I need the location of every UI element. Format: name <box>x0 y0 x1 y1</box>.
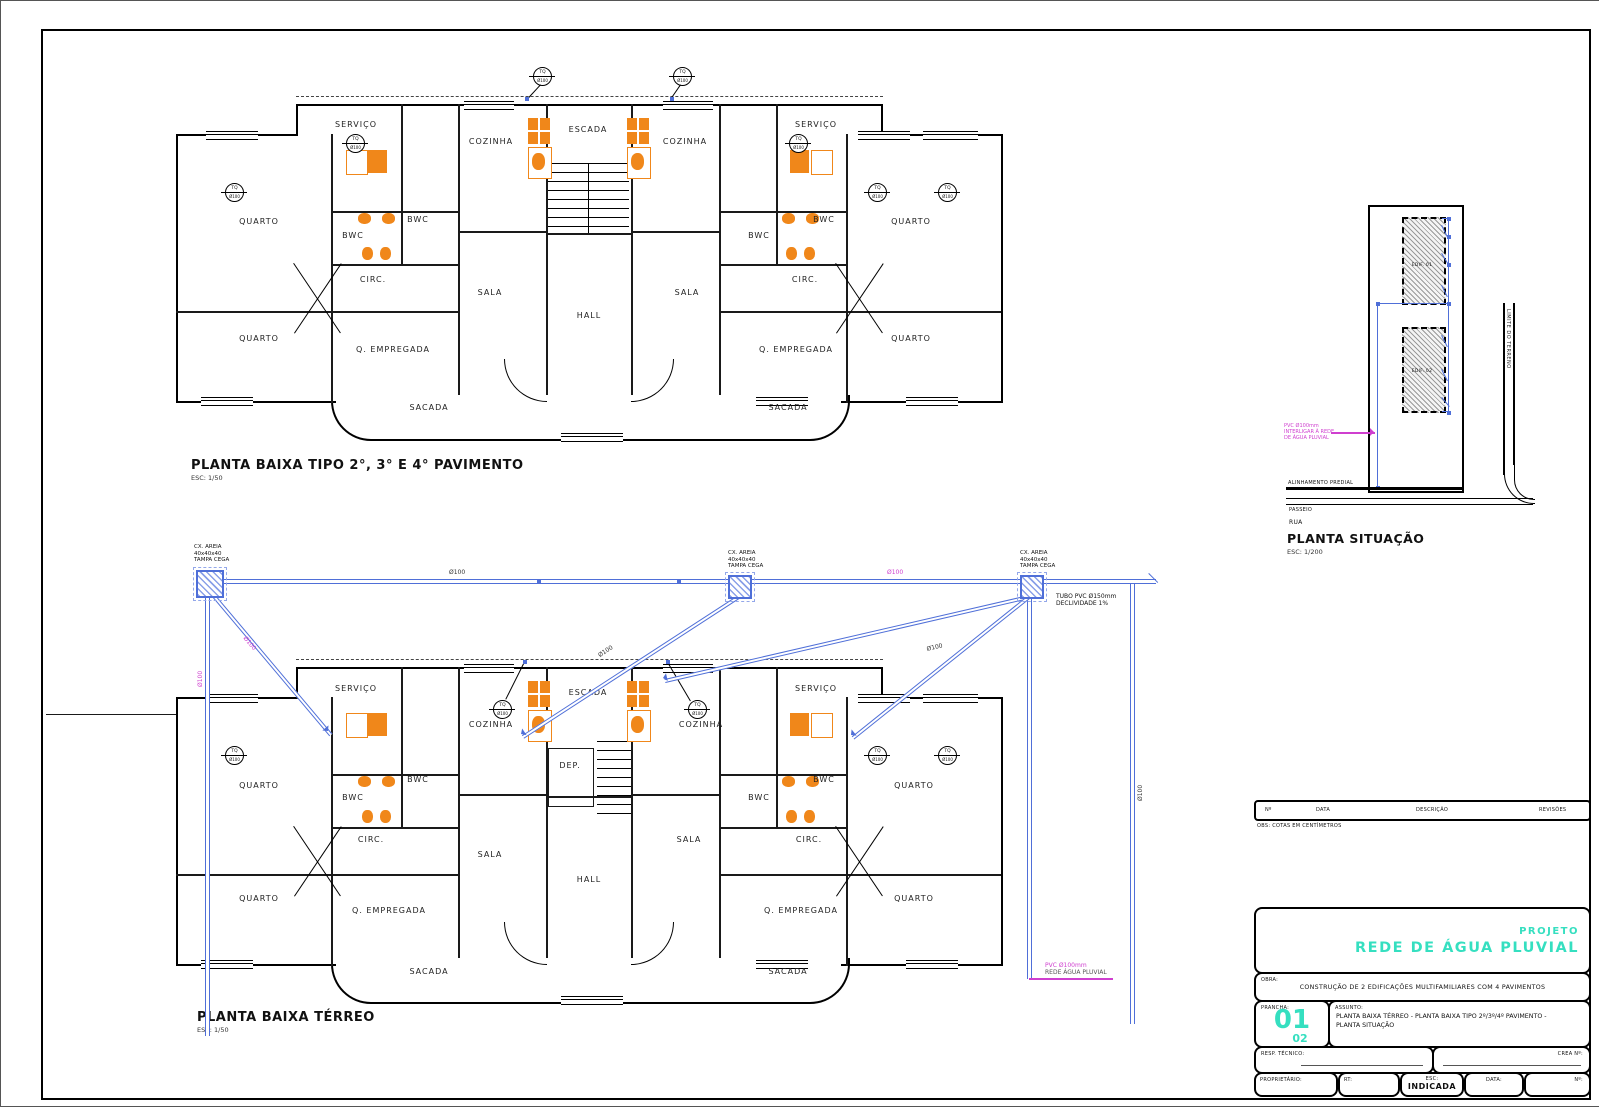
room-label: SACADA <box>409 403 448 412</box>
prim-win <box>906 960 958 969</box>
washer-icon <box>790 150 809 173</box>
toilet-icon <box>804 810 815 823</box>
ground-plan-scale: ESC: 1/50 <box>197 1026 229 1034</box>
prim-tiny: DESCRIÇÃO <box>1416 807 1448 813</box>
interconnection-note: PVC Ø100mmINTERLIGAR À REDEDE ÁGUA PLUVI… <box>1284 423 1334 441</box>
collector-branch-pipe <box>1027 596 1032 979</box>
room-label: CIRC. <box>796 835 822 844</box>
room-label: QUARTO <box>894 894 934 903</box>
prim-win <box>561 996 623 1005</box>
prim-uline <box>1301 1065 1423 1066</box>
prim-wt <box>719 667 721 958</box>
room-label: BWC <box>748 793 770 802</box>
prim-wt <box>331 697 333 966</box>
toilet-icon <box>782 213 795 224</box>
prim-dn: Ø100 <box>226 194 243 199</box>
prim-fixo <box>631 153 644 170</box>
prim-wt <box>46 714 177 715</box>
primitive: DE ÁGUA PLUVIAL <box>1284 435 1334 441</box>
room-label: SALA <box>478 288 503 297</box>
downpipe-tag: TQØ100 <box>688 700 707 719</box>
situation-title: PLANTA SITUAÇÃO <box>1287 531 1424 546</box>
prim-tp: TQ <box>226 186 243 191</box>
collector-branch-pipe <box>205 595 210 1036</box>
prim-tiny: CREA Nº: <box>1558 1051 1583 1057</box>
prim-dn: Ø100 <box>494 711 511 716</box>
prim-w <box>1286 504 1533 505</box>
rua-label: RUA <box>1289 519 1303 526</box>
prim-tiny: DATA <box>1316 807 1330 813</box>
prim-win <box>464 664 514 673</box>
prim-wt <box>546 233 631 235</box>
stove-icon <box>627 118 649 144</box>
prim-w <box>1286 498 1533 499</box>
prim-dn: Ø100 <box>534 78 551 83</box>
downpipe-tag: TQØ100 <box>938 183 957 202</box>
prim-win <box>201 397 253 406</box>
prim-pds <box>1377 303 1378 489</box>
prim-node <box>1447 217 1451 221</box>
building-label: EDIF. 01 <box>1412 263 1433 268</box>
prim-fixo <box>532 153 545 170</box>
escala-cell: ESC: INDICADA <box>1400 1072 1464 1097</box>
room-label: CIRC. <box>358 835 384 844</box>
prim-win <box>923 694 978 703</box>
proprietario-cell: PROPRIETÁRIO: <box>1254 1072 1338 1097</box>
prim-tp: TQ <box>689 703 706 708</box>
sand-box-note: CX. AREIA40x40x40TAMPA CEGA <box>194 544 229 564</box>
resp-cell: RESP. TÉCNICO: <box>1254 1046 1434 1074</box>
prim-tp: TQ <box>939 186 956 191</box>
downpipe-tag: TQØ100 <box>868 746 887 765</box>
prim-tread <box>597 768 631 769</box>
prim-wt <box>631 231 719 233</box>
pipe-diameter-label: Ø100 <box>197 671 204 687</box>
prim-wt <box>331 211 458 213</box>
toilet-icon <box>362 810 373 823</box>
sand-box <box>1020 575 1044 599</box>
room-label: DEP. <box>559 761 580 770</box>
revision-strip: Nº DATA DESCRIÇÃO REVISÕES <box>1254 800 1591 821</box>
obra-value: CONSTRUÇÃO DE 2 EDIFICAÇÕES MULTIFAMILIA… <box>1256 984 1589 991</box>
assunto-cell: ASSUNTO: PLANTA BAIXA TÉRREO - PLANTA BA… <box>1328 1000 1591 1048</box>
primitive: 40x40x40 <box>194 551 229 558</box>
prim-wt <box>776 667 778 827</box>
primitive: TAMPA CEGA <box>728 563 763 570</box>
prim-mline <box>1029 978 1113 980</box>
prim-wt <box>331 311 458 313</box>
pipe-diameter-label: Ø100 <box>887 569 903 576</box>
prim-tread <box>597 759 631 760</box>
downpipe-tag: TQØ100 <box>225 183 244 202</box>
primitive: REDE ÁGUA PLUVIAL <box>1045 969 1107 976</box>
sand-box-note: CX. AREIA40x40x40TAMPA CEGA <box>728 550 763 570</box>
primitive: TAMPA CEGA <box>194 557 229 564</box>
building-footprint <box>1402 217 1446 305</box>
prim-node <box>1447 263 1451 267</box>
room-label: BWC <box>407 215 429 224</box>
room-label: BWC <box>748 231 770 240</box>
primitive: PLANTA BAIXA TÉRREO - PLANTA BAIXA TIPO … <box>1336 1013 1547 1022</box>
primitive: CX. AREIA <box>194 544 229 551</box>
prim-w <box>176 401 336 403</box>
prancha-cell: PRANCHA: 01 02 <box>1254 1000 1330 1048</box>
toilet-icon <box>358 213 371 224</box>
prim-w <box>1001 697 1003 966</box>
prim-wt <box>401 104 403 264</box>
room-label: HALL <box>577 875 601 884</box>
toilet-icon <box>782 776 795 787</box>
washer-icon <box>368 150 387 173</box>
prim-tiny: Nº: <box>1574 1077 1583 1083</box>
prim-node <box>1376 302 1380 306</box>
primitive: PLANTA BAIXA TÉRREO - PLANTA BAIXA TIPO … <box>1336 1013 1547 1031</box>
primitive: DECLIVIDADE 1% <box>1056 600 1116 607</box>
room-label: QUARTO <box>891 217 931 226</box>
prim-w <box>1513 303 1515 465</box>
prim-tiny: RESP. TÉCNICO: <box>1261 1051 1304 1057</box>
room-label: SERVIÇO <box>335 684 377 693</box>
downpipe-tag: TQØ100 <box>533 67 552 86</box>
toilet-icon <box>804 247 815 260</box>
prim-wt <box>331 134 333 403</box>
prim-deproom <box>548 748 594 807</box>
laundry-tub-icon <box>811 713 833 738</box>
room-label: COZINHA <box>469 137 513 146</box>
prim-pds <box>1379 303 1449 304</box>
toilet-icon <box>358 776 371 787</box>
prim-dn: Ø100 <box>869 194 886 199</box>
toilet-icon <box>380 247 391 260</box>
room-label: COZINHA <box>663 137 707 146</box>
project-title: REDE DE ÁGUA PLUVIAL <box>1355 940 1579 956</box>
prim-uline <box>1443 1065 1581 1066</box>
prim-wt <box>846 134 848 403</box>
prim-wt <box>719 827 846 829</box>
sand-box <box>728 575 752 599</box>
toilet-icon <box>362 247 373 260</box>
prim-tiny: OBRA: <box>1261 977 1278 983</box>
room-label: Q. EMPREGADA <box>764 906 838 915</box>
prim-dn: Ø100 <box>226 757 243 762</box>
data-cell: DATA: <box>1464 1072 1524 1097</box>
room-label: BWC <box>813 775 835 784</box>
prim-wt <box>331 874 458 876</box>
prim-tread <box>597 777 631 778</box>
primitive: TAMPA CEGA <box>1020 563 1055 570</box>
downpipe-tag: TQØ100 <box>493 700 512 719</box>
room-label: SERVIÇO <box>795 120 837 129</box>
room-label: QUARTO <box>239 894 279 903</box>
prim-node <box>670 97 674 101</box>
prim-tread <box>597 741 631 742</box>
prim-wt <box>719 311 846 313</box>
prim-tp: TQ <box>534 70 551 75</box>
room-label: SALA <box>677 835 702 844</box>
primitive: TUBO PVC Ø150mm <box>1056 593 1116 600</box>
room-label: SALA <box>675 288 700 297</box>
prim-node <box>523 660 527 664</box>
prim-win <box>906 397 958 406</box>
prim-wt <box>458 667 460 958</box>
room-label: SACADA <box>409 967 448 976</box>
laundry-tub-icon <box>346 150 368 175</box>
room-label: Q. EMPREGADA <box>356 345 430 354</box>
prim-tp: TQ <box>226 749 243 754</box>
prim-node <box>677 579 681 583</box>
prim-tiny: PROPRIETÁRIO: <box>1260 1077 1302 1083</box>
prim-win <box>858 131 910 140</box>
downpipe-tag: TQØ100 <box>225 746 244 765</box>
stove-icon <box>627 681 649 707</box>
prim-dn: Ø100 <box>790 145 807 150</box>
prim-tread <box>597 750 631 751</box>
room-label: QUARTO <box>239 334 279 343</box>
room-label: BWC <box>407 775 429 784</box>
pipe-diameter-label: Ø100 <box>449 569 465 576</box>
downpipe-tag: TQØ100 <box>938 746 957 765</box>
prim-dn: Ø100 <box>674 78 691 83</box>
room-label: CIRC. <box>360 275 386 284</box>
prim-tread <box>597 804 631 805</box>
limite-label: LIMITE DO TERRENO <box>1505 309 1511 369</box>
project-header: PROJETO REDE DE ÁGUA PLUVIAL <box>1254 907 1591 974</box>
prim-pds <box>1448 219 1449 413</box>
prim-tp: TQ <box>347 137 364 142</box>
prim-tp: TQ <box>790 137 807 142</box>
prim-mline <box>1331 432 1375 434</box>
prim-win <box>561 433 623 442</box>
ground-plan-title: PLANTA BAIXA TÉRREO <box>197 1010 375 1025</box>
primitive: PVC Ø100mm <box>1045 962 1107 969</box>
building-label: EDIF. 02 <box>1412 369 1433 374</box>
room-label: ESCADA <box>569 125 608 134</box>
prim-tiny: DATA: <box>1486 1077 1502 1083</box>
prim-tread <box>597 795 631 796</box>
prancha-number: 01 <box>1274 1007 1310 1033</box>
room-label: BWC <box>342 231 364 240</box>
room-label: SERVIÇO <box>335 120 377 129</box>
toilet-icon <box>380 810 391 823</box>
prim-dn: Ø100 <box>869 757 886 762</box>
prim-wt <box>719 264 846 266</box>
laundry-tub-icon <box>811 150 833 175</box>
prim-win <box>464 101 514 110</box>
escala-value: INDICADA <box>1408 1082 1456 1091</box>
room-label: Q. EMPREGADA <box>352 906 426 915</box>
prim-node <box>1447 235 1451 239</box>
prim-wt <box>331 774 458 776</box>
prim-w <box>296 104 298 136</box>
stove-icon <box>528 118 550 144</box>
prim-node <box>537 579 541 583</box>
prim-wt <box>719 211 846 213</box>
room-label: HALL <box>577 311 601 320</box>
sheet-note: OBS: COTAS EM CENTÍMETROS <box>1257 823 1342 829</box>
prim-tp: TQ <box>674 70 691 75</box>
toilet-icon <box>786 810 797 823</box>
washer-icon <box>790 713 809 736</box>
downpipe-tag: TQØ100 <box>346 134 365 153</box>
stove-icon <box>528 681 550 707</box>
prim-tiny: Nº <box>1265 807 1272 813</box>
toilet-icon <box>382 776 395 787</box>
room-label: SALA <box>478 850 503 859</box>
prim-dn: Ø100 <box>939 194 956 199</box>
street-connection-note: PVC Ø100mmREDE ÁGUA PLUVIAL <box>1045 962 1107 976</box>
prim-w <box>296 104 883 106</box>
sand-box-note: CX. AREIA40x40x40TAMPA CEGA <box>1020 550 1055 570</box>
prim-tiny: RT: <box>1344 1077 1352 1083</box>
primitive: 40x40x40 <box>728 557 763 564</box>
obra-row: OBRA: CONSTRUÇÃO DE 2 EDIFICAÇÕES MULTIF… <box>1254 972 1591 1002</box>
primitive: 40x40x40 <box>1020 557 1055 564</box>
room-label: BWC <box>342 793 364 802</box>
pipe-diameter-label: Ø100 <box>1137 785 1144 801</box>
drawing-sheet: TQØ100 TQØ100 TQØ100 TQØ100 TQØ100 TQØ10… <box>0 0 1599 1107</box>
prim-dash <box>296 659 883 660</box>
room-label: COZINHA <box>679 720 723 729</box>
passeio-label: PASSEIO <box>1289 507 1312 513</box>
prim-tp: TQ <box>869 749 886 754</box>
room-label: Q. EMPREGADA <box>759 345 833 354</box>
prim-w <box>1001 134 1003 403</box>
prim-w <box>176 697 178 966</box>
prim-node <box>1447 302 1451 306</box>
sand-box <box>196 570 224 598</box>
upper-plan-title: PLANTA BAIXA TIPO 2°, 3° E 4° PAVIMENTO <box>191 458 524 473</box>
rt-cell: RT: <box>1338 1072 1400 1097</box>
prim-tp: TQ <box>939 749 956 754</box>
laundry-tub-icon <box>346 713 368 738</box>
prim-wt <box>776 104 778 264</box>
prim-wt <box>331 264 458 266</box>
pipe-note: TUBO PVC Ø150mmDECLIVIDADE 1% <box>1056 593 1116 607</box>
primitive: PLANTA SITUAÇÃO <box>1336 1022 1547 1031</box>
prim-node <box>525 97 529 101</box>
downpipe-tag: TQØ100 <box>673 67 692 86</box>
prim-tread <box>597 786 631 787</box>
situation-scale: ESC: 1/200 <box>1287 548 1323 556</box>
prim-wt <box>458 104 460 395</box>
prim-tiny: ASSUNTO: <box>1335 1005 1363 1011</box>
prim-wt <box>719 874 846 876</box>
washer-icon <box>368 713 387 736</box>
crea-cell: CREA Nº: <box>1432 1046 1591 1074</box>
numero-cell: Nº: <box>1524 1072 1591 1097</box>
room-label: COZINHA <box>469 720 513 729</box>
prim-wt <box>719 104 721 395</box>
prim-arr <box>1370 428 1378 436</box>
prim-tp: TQ <box>869 186 886 191</box>
collector-branch-pipe <box>1130 584 1135 1024</box>
downpipe-tag: TQØ100 <box>868 183 887 202</box>
prim-win <box>923 131 978 140</box>
prim-node <box>666 660 670 664</box>
prim-dn: Ø100 <box>347 145 364 150</box>
prim-w <box>296 667 883 669</box>
room-label: SACADA <box>768 967 807 976</box>
projeto-label: PROJETO <box>1519 926 1579 937</box>
prim-wt <box>458 794 546 796</box>
toilet-icon <box>382 213 395 224</box>
prim-wt <box>631 794 719 796</box>
prim-wt <box>458 231 546 233</box>
prim-w <box>176 134 178 403</box>
prim-dn: Ø100 <box>939 757 956 762</box>
prim-dash <box>296 96 883 97</box>
room-label: QUARTO <box>239 781 279 790</box>
toilet-icon <box>786 247 797 260</box>
prancha-total: 02 <box>1292 1032 1307 1045</box>
prim-tiny: REVISÕES <box>1539 807 1566 813</box>
room-label: CIRC. <box>792 275 818 284</box>
room-label: QUARTO <box>891 334 931 343</box>
downpipe-tag: TQØ100 <box>789 134 808 153</box>
upper-plan-scale: ESC: 1/50 <box>191 474 223 482</box>
alinhamento-label: ALINHAMENTO PREDIAL <box>1288 480 1353 486</box>
prim-win <box>663 101 713 110</box>
prim-dn: Ø100 <box>689 711 706 716</box>
room-label: SERVIÇO <box>795 684 837 693</box>
prim-wt <box>401 667 403 827</box>
prim-w <box>1286 487 1463 490</box>
room-label: QUARTO <box>894 781 934 790</box>
prim-w <box>176 964 336 966</box>
prim-fixo <box>631 716 644 733</box>
prim-rail <box>588 163 589 233</box>
prim-wt <box>331 827 458 829</box>
room-label: SACADA <box>768 403 807 412</box>
prim-tp: TQ <box>494 703 511 708</box>
prim-node <box>1447 411 1451 415</box>
primitive: CX. AREIA <box>728 550 763 557</box>
room-label: QUARTO <box>239 217 279 226</box>
prim-win <box>206 131 258 140</box>
primitive: CX. AREIA <box>1020 550 1055 557</box>
prim-tread <box>597 813 631 814</box>
room-label: BWC <box>813 215 835 224</box>
prim-win <box>206 694 258 703</box>
